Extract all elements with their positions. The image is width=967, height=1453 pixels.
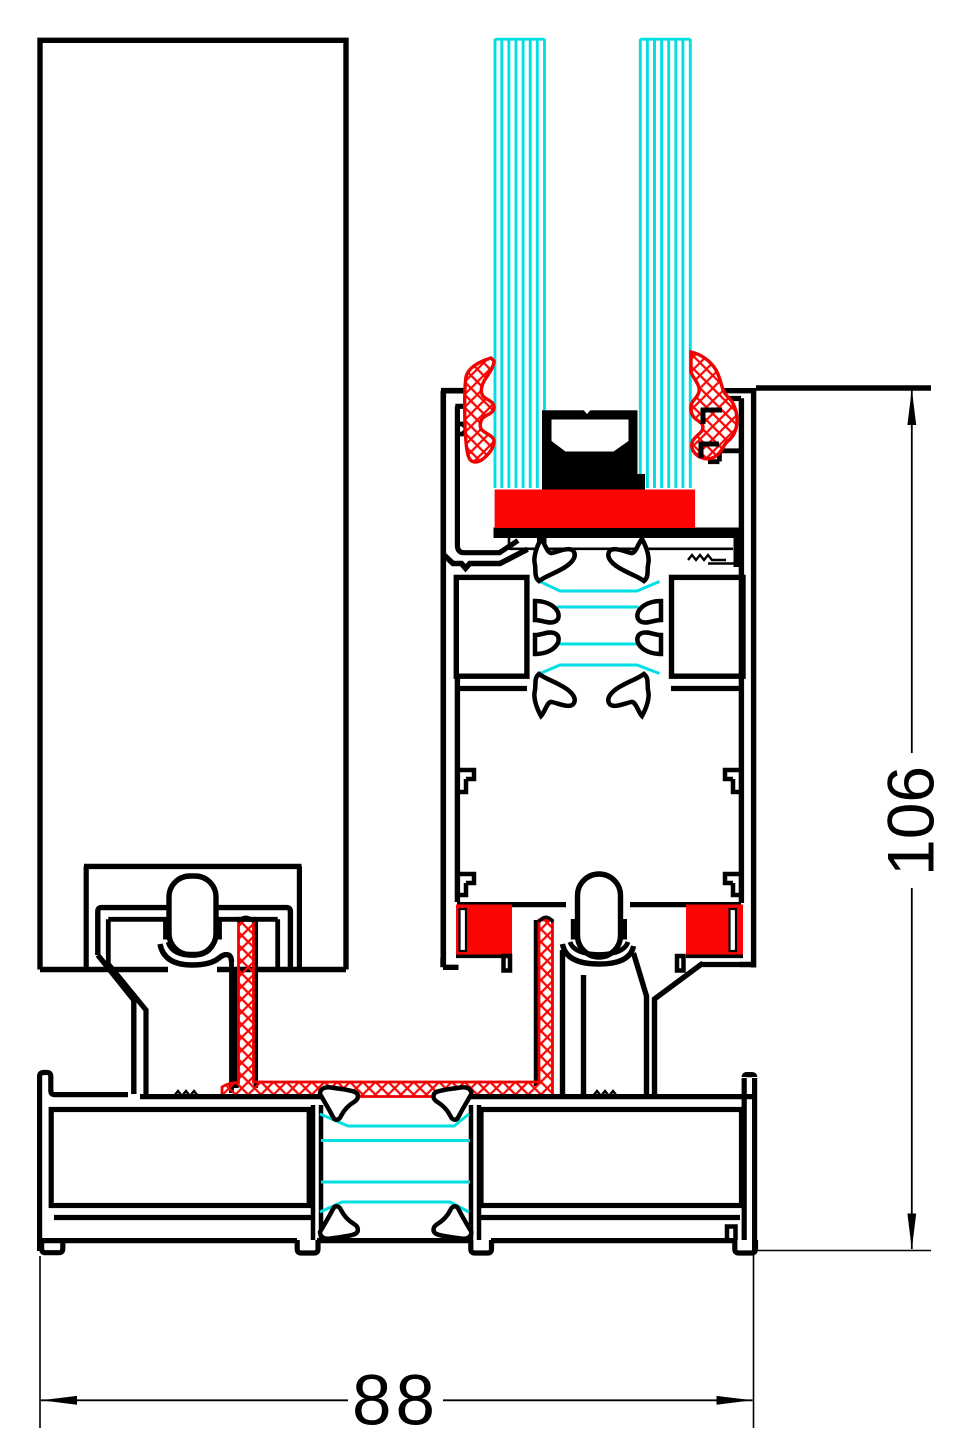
svg-text:88: 88 <box>352 1362 439 1441</box>
svg-text:106: 106 <box>874 766 948 876</box>
